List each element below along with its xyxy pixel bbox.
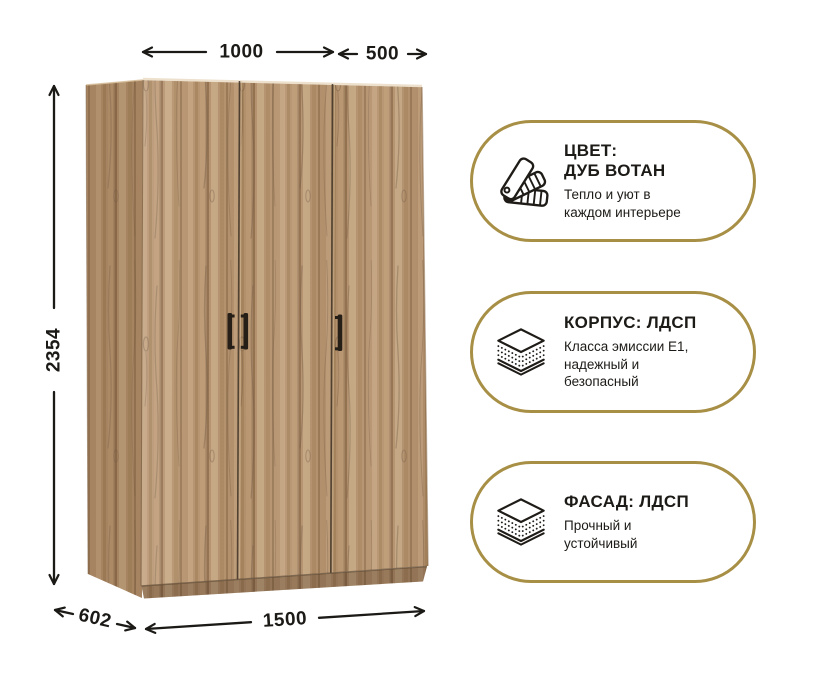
badge-body-title: КОРПУС: ЛДСП xyxy=(564,313,739,333)
dimension-label-602: 602 xyxy=(76,605,113,633)
wardrobe-front-doors xyxy=(141,79,428,586)
badge-color-title: ЦВЕТ: ДУБ ВОТАН xyxy=(564,141,739,182)
wardrobe-illustration xyxy=(86,79,428,599)
badge-body-text: КОРПУС: ЛДСП Класса эмиссии Е1, надежный… xyxy=(552,313,739,391)
badge-facade-subtitle: Прочный и устойчивый xyxy=(564,517,739,552)
wardrobe-side-panel xyxy=(86,80,143,598)
badge-facade: ФАСАД: ЛДСП Прочный и устойчивый xyxy=(470,461,756,583)
badge-color-text: ЦВЕТ: ДУБ ВОТАН Тепло и уют в каждом инт… xyxy=(552,141,739,222)
product-infographic: 1000 500 2354 602 1500 xyxy=(0,0,816,700)
badge-color: ЦВЕТ: ДУБ ВОТАН Тепло и уют в каждом инт… xyxy=(470,120,756,242)
badge-facade-title: ФАСАД: ЛДСП xyxy=(564,492,739,512)
color-swatch-fan-icon xyxy=(490,150,552,212)
laminated-board-icon xyxy=(490,491,552,553)
laminated-board-icon xyxy=(490,321,552,383)
badge-color-subtitle: Тепло и уют в каждом интерьере xyxy=(564,186,739,221)
badge-body: КОРПУС: ЛДСП Класса эмиссии Е1, надежный… xyxy=(470,291,756,413)
dimension-label-2354: 2354 xyxy=(44,328,65,372)
dimension-label-1500: 1500 xyxy=(262,608,308,632)
dimension-label-500: 500 xyxy=(366,44,399,65)
badge-body-subtitle: Класса эмиссии Е1, надежный и безопасный xyxy=(564,338,739,391)
badge-facade-text: ФАСАД: ЛДСП Прочный и устойчивый xyxy=(552,492,739,552)
dimension-label-1000: 1000 xyxy=(219,42,263,63)
